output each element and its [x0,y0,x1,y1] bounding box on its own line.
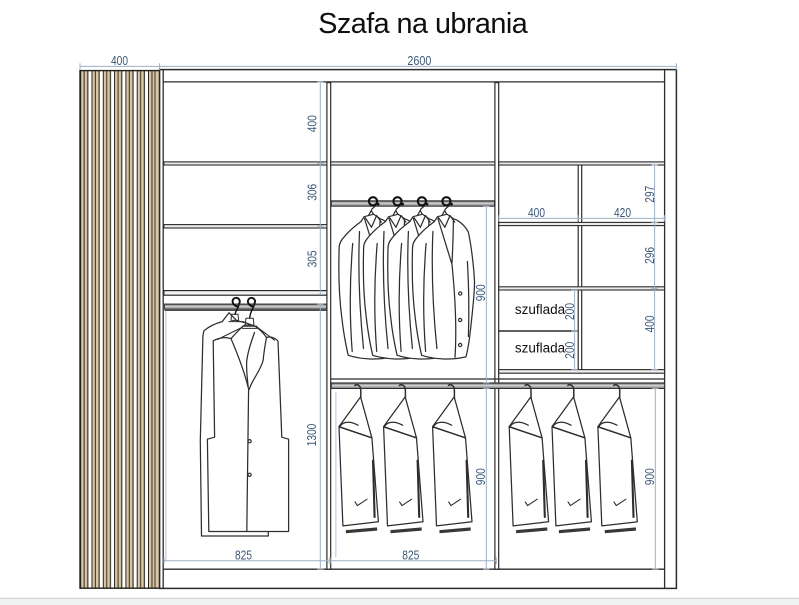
svg-text:420: 420 [614,205,631,220]
svg-text:200: 200 [562,303,577,320]
svg-text:297: 297 [642,186,657,203]
svg-text:900: 900 [473,284,488,301]
svg-text:825: 825 [235,548,252,563]
svg-text:200: 200 [562,342,577,359]
svg-text:296: 296 [642,247,657,264]
svg-text:szuflada: szuflada [515,341,566,356]
svg-text:825: 825 [402,548,419,563]
svg-text:400: 400 [305,115,320,132]
svg-text:306: 306 [305,184,320,201]
svg-text:2600: 2600 [407,53,431,68]
svg-text:305: 305 [305,250,320,267]
svg-text:900: 900 [642,468,657,485]
svg-text:400: 400 [642,316,657,333]
svg-text:1300: 1300 [304,424,319,447]
svg-text:Szafa na ubrania: Szafa na ubrania [318,8,528,40]
svg-text:400: 400 [111,53,128,68]
svg-text:900: 900 [473,468,488,485]
svg-text:szuflada: szuflada [515,302,566,317]
svg-text:400: 400 [528,205,545,220]
